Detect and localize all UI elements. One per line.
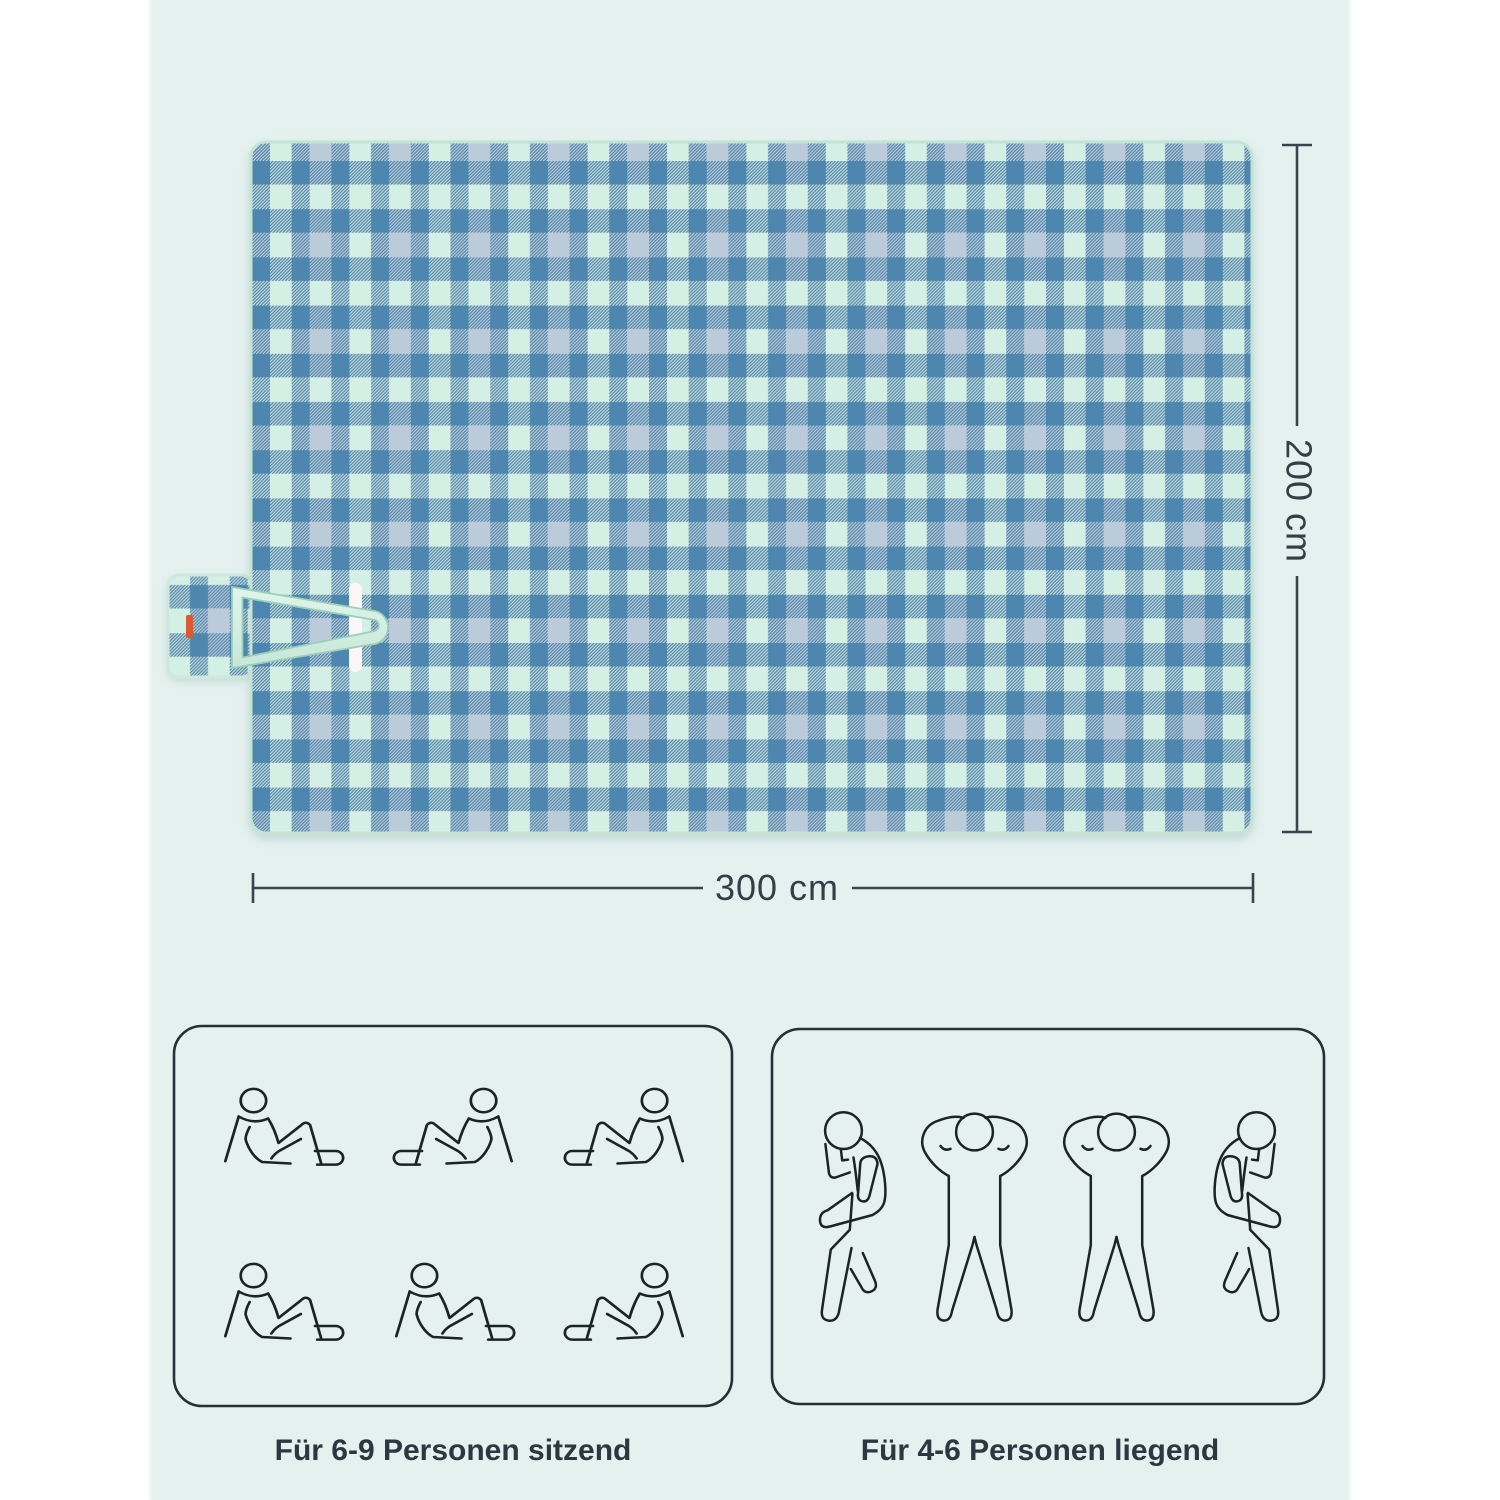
svg-text:Für 4-6 Personen liegend: Für 4-6 Personen liegend	[861, 1434, 1219, 1467]
svg-text:Für 6-9 Personen sitzend: Für 6-9 Personen sitzend	[275, 1434, 632, 1467]
svg-text:200 cm: 200 cm	[1278, 439, 1319, 563]
svg-text:300 cm: 300 cm	[715, 867, 839, 908]
